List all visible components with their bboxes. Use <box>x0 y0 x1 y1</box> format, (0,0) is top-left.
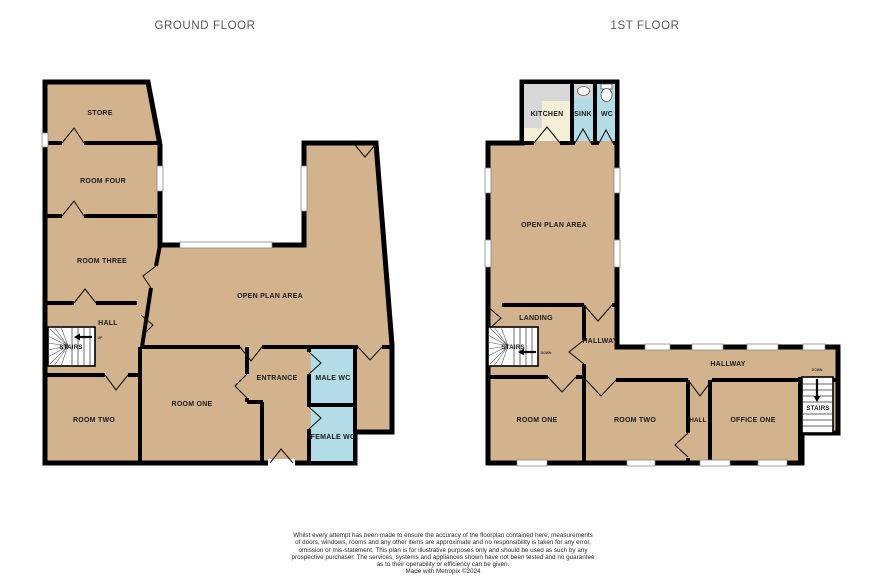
label-ground-male-wc: MALE WC <box>315 375 350 382</box>
label-first-hallway-upper: HALLWAY <box>582 338 617 345</box>
label-first-wc: WC <box>601 111 613 118</box>
label-ground-store: STORE <box>87 110 112 117</box>
disclaimer: Whilst every attempt has been made to en… <box>258 532 628 576</box>
ground-stairs-direction-label: UP <box>98 336 103 340</box>
first-stairs-right-direction-label: DOWN <box>812 368 823 372</box>
label-first-kitchen: KITCHEN <box>531 111 564 118</box>
label-first-sink: SINK <box>574 111 592 118</box>
floorplan-drawing: STAIRS UP STORE ROOM FOUR ROOM THREE HAL… <box>0 0 886 581</box>
label-ground-room-four: ROOM FOUR <box>80 178 126 185</box>
disclaimer-line: of doors, windows, rooms and any other i… <box>258 539 628 546</box>
disclaimer-line: omission or mis-statement. This plan is … <box>258 547 628 554</box>
label-first-landing: LANDING <box>519 315 553 322</box>
label-ground-room-three: ROOM THREE <box>77 258 127 265</box>
first-stairs-left-direction-label: DOWN <box>541 351 552 355</box>
ground-stairs: STAIRS UP <box>48 327 103 366</box>
label-ground-room-one: ROOM ONE <box>172 401 213 408</box>
ground-stairs-label: STAIRS <box>59 344 82 351</box>
label-first-open-plan: OPEN PLAN AREA <box>521 222 587 229</box>
label-first-hall: HALL <box>689 417 706 424</box>
disclaimer-line: prospective purchaser. The services, sys… <box>258 554 628 561</box>
label-ground-hall: HALL <box>98 320 118 327</box>
first-stairs-right-label: STAIRS <box>806 405 829 412</box>
floorplan-page: GROUND FLOOR 1ST FLOOR <box>0 0 886 581</box>
first-stairs-right: STAIRS DOWN <box>802 368 833 433</box>
toilet-fixture <box>601 84 612 102</box>
disclaimer-credit: Made with Metropix ©2024 <box>258 568 628 575</box>
kitchen-counter-side <box>524 84 542 128</box>
label-ground-room-two: ROOM TWO <box>73 417 115 424</box>
disclaimer-line: Whilst every attempt has been made to en… <box>258 532 628 539</box>
sink-fixture <box>575 84 592 98</box>
ground-floor-plan: STAIRS UP STORE ROOM FOUR ROOM THREE HAL… <box>42 82 392 467</box>
label-first-office-one: OFFICE ONE <box>730 417 775 424</box>
first-stairs-left-label: STAIRS <box>501 344 524 351</box>
label-ground-entrance: ENTRANCE <box>257 375 298 382</box>
label-ground-open-plan: OPEN PLAN AREA <box>237 293 303 300</box>
label-first-hallway-lower: HALLWAY <box>710 361 745 368</box>
label-ground-female-wc: FEMALE WC <box>311 434 356 441</box>
label-first-room-one: ROOM ONE <box>517 417 558 424</box>
label-first-room-two: ROOM TWO <box>614 417 656 424</box>
first-floor-plan: STAIRS DOWN STAIRS DOWN KITCHEN SINK WC … <box>485 82 838 466</box>
